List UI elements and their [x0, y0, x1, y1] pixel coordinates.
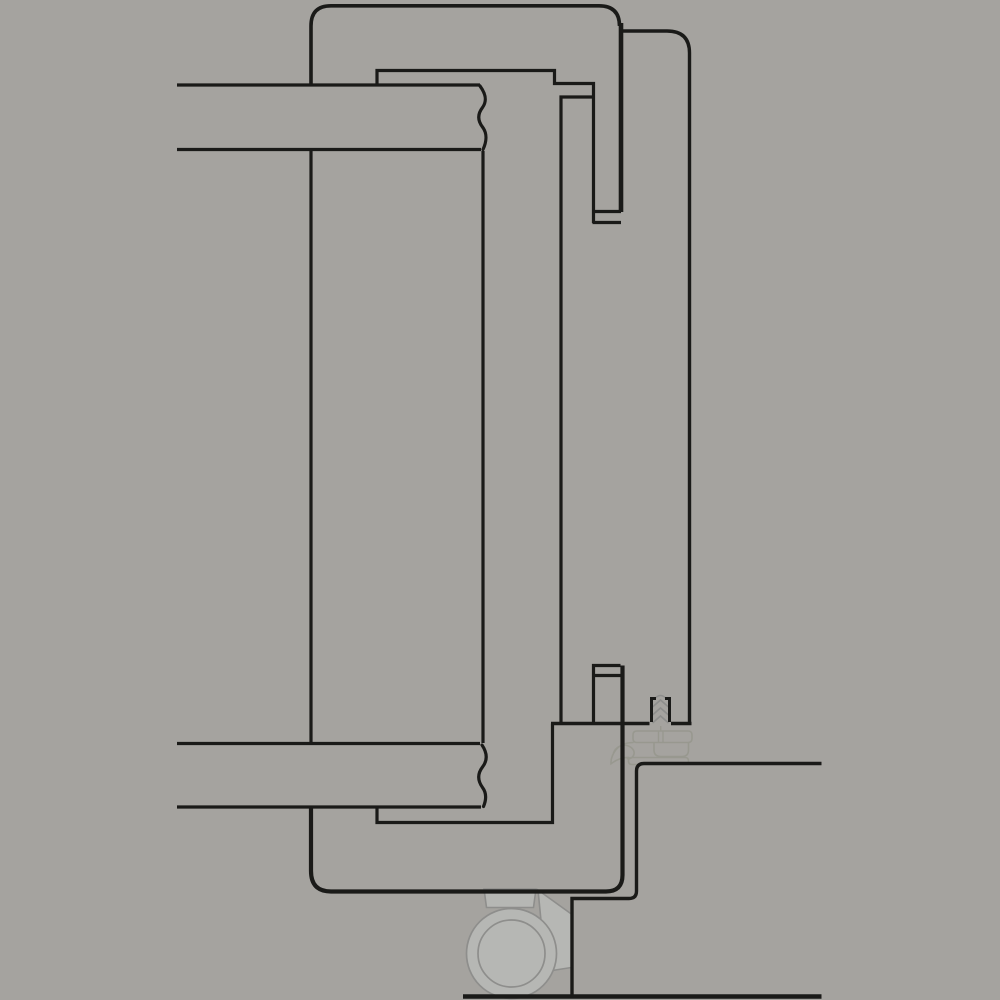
background: [0, 0, 1000, 1000]
door-frame-section-diagram: [0, 0, 1000, 1000]
diagram-svg: [0, 0, 1000, 1000]
roller-outer-circle: [467, 909, 557, 999]
